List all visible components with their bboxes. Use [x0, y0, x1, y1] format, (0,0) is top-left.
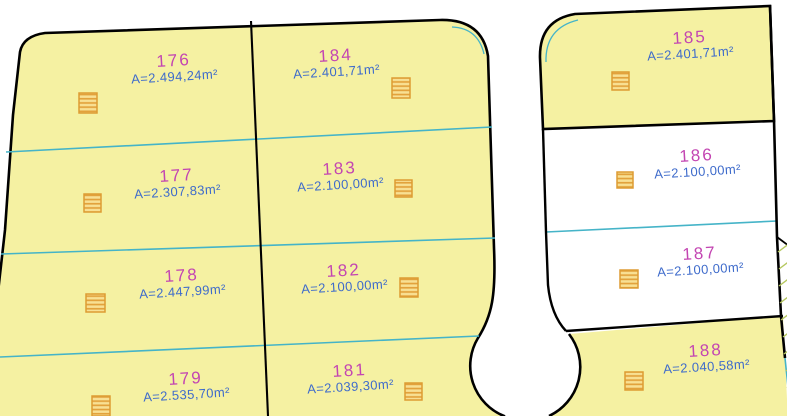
- hatch-symbol-178: [86, 294, 105, 312]
- hatch-symbol-188: [625, 372, 643, 390]
- hatch-symbol-187: [620, 270, 638, 288]
- left-block-outline: [0, 20, 504, 416]
- parcel-185-outline: [540, 6, 774, 129]
- hatch-symbol-182: [400, 278, 418, 297]
- hatch-symbol-176: [79, 93, 97, 113]
- hatch-symbol-185: [612, 72, 629, 90]
- cadastral-plan: 176 A=2.494,24m² 177 A=2.307,83m² 178 A=…: [0, 0, 787, 416]
- parcel-map-svg: [0, 0, 787, 416]
- hatch-symbol-181: [405, 383, 422, 400]
- hatch-symbol-177: [84, 194, 101, 212]
- hatch-symbol-186: [617, 172, 633, 188]
- hatch-symbol-179: [92, 396, 110, 416]
- parcel-188-fill: [549, 316, 787, 416]
- hatch-symbol-183: [395, 180, 412, 197]
- hatch-symbol-184: [392, 78, 410, 98]
